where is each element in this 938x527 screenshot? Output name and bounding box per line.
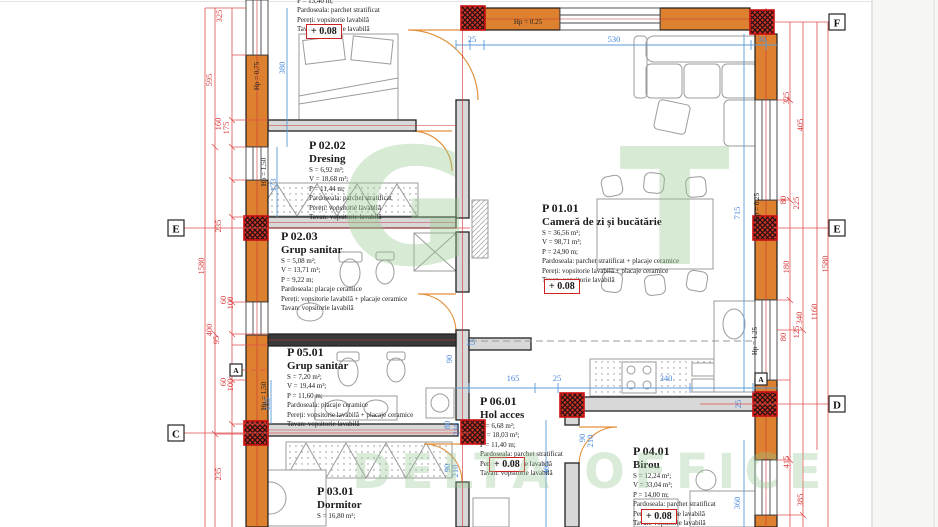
- room-id: P 02.03: [281, 230, 407, 244]
- sofa-group: [634, 36, 764, 146]
- hp-label: Hp = 1,50: [260, 157, 268, 186]
- dim-label: 530: [608, 34, 621, 44]
- room-floor: Pardoseala: parchet stratificat + placaj…: [542, 257, 679, 266]
- room-name: Dormitor: [317, 499, 362, 512]
- dim-label: 25: [733, 400, 743, 409]
- door-grup-sanitar: [418, 294, 456, 332]
- room-area: S = 36,56 m²;: [542, 229, 679, 238]
- room-label-p0301: P 03.01 Dormitor S = 16,80 m²;: [317, 485, 362, 521]
- dim-label: 25: [467, 337, 476, 347]
- section-marker-a2: A: [758, 375, 764, 384]
- dim-label: 235: [213, 468, 223, 481]
- room-id: P 05.01: [287, 346, 413, 360]
- room-perimeter: P = 9,22 m;: [281, 276, 407, 285]
- bed-top-left: [299, 34, 398, 120]
- hp-label: Hp = 0.25: [753, 192, 761, 221]
- room-label-p0203: P 02.03 Grup sanitar S = 5,08 m²; V = 13…: [281, 230, 407, 314]
- room-label-p0202: P 02.02 Dresing S = 6,92 m²; V = 18,68 m…: [309, 139, 392, 223]
- dim-label: 400: [204, 324, 214, 337]
- room-id: P 06.01: [480, 395, 563, 409]
- dim-label: 715: [732, 207, 742, 220]
- dim-label: 95: [211, 336, 221, 345]
- room-id: P 01.01: [542, 202, 679, 216]
- dim-label: 210: [451, 423, 461, 436]
- dim-label: 415: [781, 456, 791, 469]
- dim-label: 180: [781, 261, 791, 274]
- dim-label: 385: [795, 494, 805, 507]
- room-ceiling: Tavan: vopsitorie lavabilă: [287, 420, 413, 429]
- grid-marker-f-right: F: [834, 18, 841, 30]
- hp-label: Hp = 1.25: [751, 326, 759, 355]
- room-name: Cameră de zi și bucătărie: [542, 216, 679, 229]
- sheet-right-margin: [873, 0, 938, 527]
- dim-label: 225: [791, 197, 801, 210]
- dim-label: 80: [778, 333, 788, 342]
- room-ceiling: Tavan: vopsitorie lavabilă: [281, 304, 407, 313]
- wall-shelf: [472, 200, 488, 258]
- room-walls: Pereți: vopsitorie lavabilă + placaje ce…: [287, 411, 413, 420]
- room-walls: Pereți: vopsitorie lavabilă + placaje ce…: [542, 267, 679, 276]
- room-volume: V = 33,04 m³;: [633, 481, 716, 490]
- level-badge: + 0.08: [306, 24, 342, 39]
- column: [750, 10, 774, 34]
- room-walls: Pereți: vopsitorie lavabilă: [309, 204, 392, 213]
- level-badge: + 0.08: [641, 509, 677, 524]
- dim-label: 125: [791, 326, 801, 339]
- dim-label: 235: [213, 220, 223, 233]
- room-area: S = 6,68 m²;: [480, 422, 563, 431]
- dim-label: 1580: [196, 258, 206, 275]
- dim-label: 100: [225, 297, 235, 310]
- column: [560, 393, 584, 417]
- dim-label: 380: [277, 62, 287, 75]
- hol-cabinet: [473, 498, 509, 527]
- dim-label: 165: [507, 373, 520, 383]
- room-id: P 04.01: [633, 445, 716, 459]
- room-area: S = 7,20 m²;: [287, 373, 413, 382]
- dim-label: 1160: [809, 304, 819, 321]
- dim-label: 360: [732, 497, 742, 510]
- room-name: Hol acces: [480, 409, 563, 422]
- hp-label: Hp = 1,50: [260, 381, 268, 410]
- room-area: S = 12,24 m²;: [633, 472, 716, 481]
- floor-plan-sheet: 325 595 160 175 235 1580 400 95 60 100 6…: [0, 0, 938, 527]
- room-floor: Pardoseala: parchet stratificat: [309, 194, 392, 203]
- dim-label: 340: [660, 373, 673, 383]
- room-ceiling: Tavan: vopsitorie lavabilă: [309, 213, 392, 222]
- column: [461, 6, 485, 30]
- room-floor: Pardoseala: parchet stratificat: [297, 6, 380, 15]
- floor-plan-drawing: 325 595 160 175 235 1580 400 95 60 100 6…: [0, 0, 938, 527]
- dim-label: 25: [553, 373, 562, 383]
- dim-label: 210: [450, 465, 460, 478]
- room-area: S = 5,08 m²;: [281, 257, 407, 266]
- level-badge: + 0.08: [544, 279, 580, 294]
- dim-label: 30: [758, 34, 767, 44]
- dim-label: 340: [794, 312, 804, 325]
- room-perimeter: P = 11,60 m;: [287, 392, 413, 401]
- dim-label: 210: [585, 435, 595, 448]
- room-name: Birou: [633, 459, 716, 472]
- room-floor: Pardoseala: placaje ceramice: [281, 285, 407, 294]
- room-name: Grup sanitar: [281, 244, 407, 257]
- room-volume: V = 98,71 m³;: [542, 238, 679, 247]
- grid-marker-d-right: D: [833, 400, 841, 412]
- dim-label: 80: [778, 196, 788, 205]
- dim-label: 595: [204, 74, 214, 87]
- hp-label: Hp = 0,75: [253, 61, 261, 90]
- dim-label: 405: [795, 119, 805, 132]
- room-name: Grup sanitar: [287, 360, 413, 373]
- level-badge: + 0.08: [489, 457, 525, 472]
- dim-label: 173: [268, 179, 278, 192]
- room-label-p0501: P 05.01 Grup sanitar S = 7,20 m²; V = 19…: [287, 346, 413, 430]
- grid-marker-c-left: C: [172, 429, 180, 441]
- room-walls: Pereți: vopsitorie lavabilă + placaje ce…: [281, 295, 407, 304]
- room-name: Dresing: [309, 153, 392, 166]
- room-floor: Pardoseala: placaje ceramice: [287, 401, 413, 410]
- dim-label: 325: [781, 92, 791, 105]
- room-id: P 02.02: [309, 139, 392, 153]
- room-volume: V = 19,44 m³;: [287, 382, 413, 391]
- door-dresing: [412, 131, 452, 171]
- dim-label: 175: [221, 122, 231, 135]
- hp-label: Hp = 0.25: [514, 18, 543, 26]
- room-area: S = 6,92 m²;: [309, 166, 392, 175]
- room-area: S = 16,80 m²;: [317, 512, 362, 521]
- room-volume: V = 13,71 m³;: [281, 266, 407, 275]
- room-volume: V = 18,03 m³;: [480, 431, 563, 440]
- grid-marker-e-right: E: [833, 224, 840, 236]
- room-perimeter: P = 11,40 m;: [480, 441, 563, 450]
- room-id: P 03.01: [317, 485, 362, 499]
- dim-label: 100: [225, 379, 235, 392]
- section-marker-a1: A: [233, 366, 239, 375]
- room-perimeter: P = 24,90 m;: [542, 248, 679, 257]
- dim-label: 1580: [820, 256, 830, 273]
- wall-hol-north: [469, 338, 531, 350]
- room-label-p0101: P 01.01 Cameră de zi și bucătărie S = 36…: [542, 202, 679, 286]
- dim-label: 25: [468, 34, 477, 44]
- right-dim-lines: [790, 22, 828, 527]
- kitchen-counter: [590, 301, 755, 396]
- dim-label: 90: [444, 355, 454, 364]
- room-volume: V = 18,68 m³;: [309, 175, 392, 184]
- room-perimeter: P = 11,44 m;: [309, 185, 392, 194]
- wall-hol-east-b: [565, 463, 579, 527]
- dim-label: 325: [214, 10, 224, 23]
- grid-marker-e-left: E: [172, 224, 179, 236]
- room-perimeter: P = 14,00 m;: [633, 491, 716, 500]
